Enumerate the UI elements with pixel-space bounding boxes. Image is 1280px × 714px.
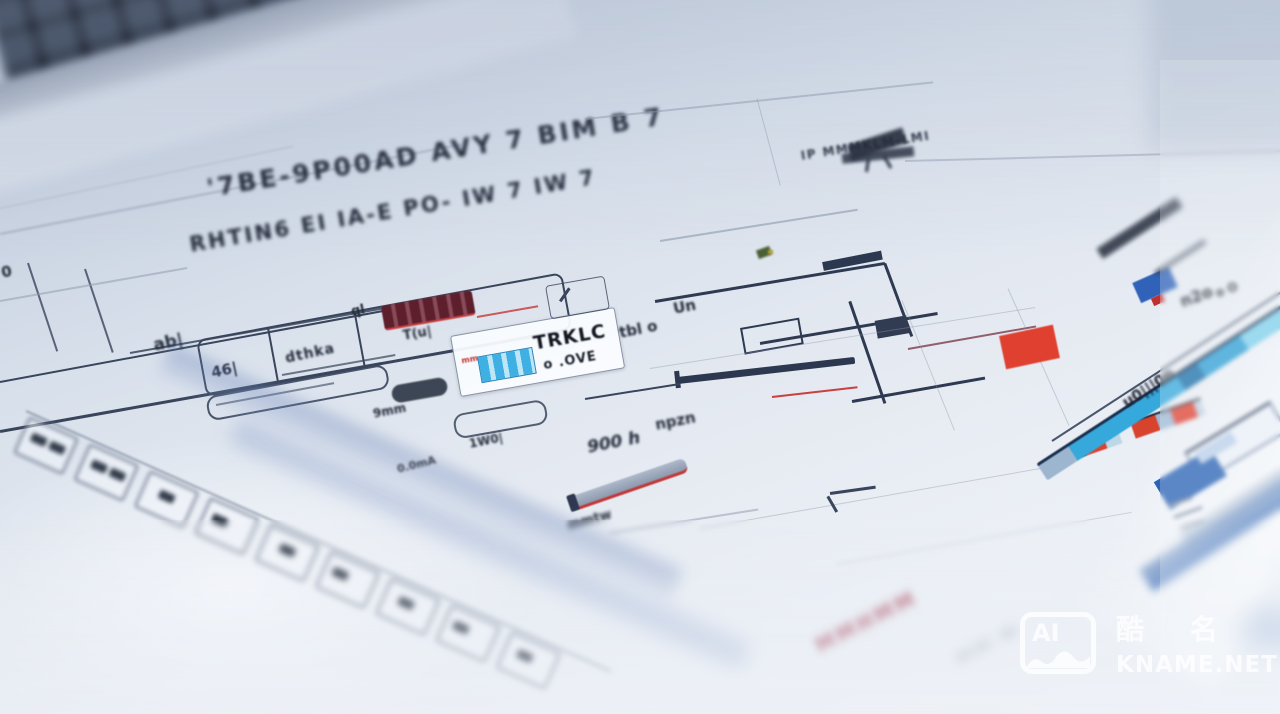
red-dependency-line bbox=[772, 386, 858, 398]
cell-mark bbox=[108, 467, 126, 482]
column-line bbox=[27, 263, 58, 352]
panel-title: TRKLC bbox=[532, 322, 608, 353]
yellow-fleck bbox=[768, 250, 773, 254]
connector-line bbox=[852, 377, 985, 403]
cyan-highlight-block bbox=[477, 347, 537, 383]
task-label: 900 h bbox=[586, 430, 642, 457]
watermark-text-block: 酷 名 KNAME.NET bbox=[1116, 608, 1278, 678]
watermark-image-icon: AI bbox=[1020, 612, 1096, 674]
row-label: 0 bbox=[0, 264, 13, 281]
bar-end-cap bbox=[566, 493, 580, 512]
row-header-cell bbox=[13, 416, 79, 475]
cell-mark bbox=[48, 441, 66, 456]
watermark-brand-url: KNAME.NET bbox=[1116, 652, 1278, 678]
grid-line bbox=[585, 81, 933, 119]
photo-of-gantt-schedule: '7BE-9P00AD AVY 7 BIM B 7 RHTIN6 EI IA-E… bbox=[0, 0, 1280, 714]
mountain-wave-icon bbox=[1026, 642, 1090, 668]
panel-subtitle: o .OVE bbox=[542, 350, 597, 372]
node-label: Un bbox=[672, 298, 697, 317]
grid-line bbox=[757, 98, 781, 185]
cell-divider bbox=[354, 312, 366, 365]
cell-mark bbox=[158, 489, 176, 504]
gantt-bar-navy bbox=[678, 357, 856, 384]
grid-line bbox=[660, 209, 858, 242]
connector-line bbox=[655, 262, 885, 303]
gantt-bar-dark-pill bbox=[390, 376, 448, 403]
task-label: npzn bbox=[654, 410, 697, 433]
cell-label: ql bbox=[350, 303, 366, 319]
cell-divider bbox=[267, 328, 279, 381]
connector-line bbox=[585, 383, 680, 400]
cell-mark bbox=[30, 432, 48, 447]
hook-line bbox=[830, 486, 876, 495]
gantt-bar-silver-red bbox=[569, 458, 689, 512]
watermark: AI 酷 名 KNAME.NET bbox=[1020, 608, 1278, 678]
node-label: tbl o bbox=[618, 319, 659, 341]
milestone-leg bbox=[865, 158, 870, 172]
watermark-brand-cjk: 酷 名 bbox=[1116, 608, 1278, 648]
task-label: 9mm bbox=[372, 402, 407, 420]
cell-mark bbox=[90, 459, 108, 474]
